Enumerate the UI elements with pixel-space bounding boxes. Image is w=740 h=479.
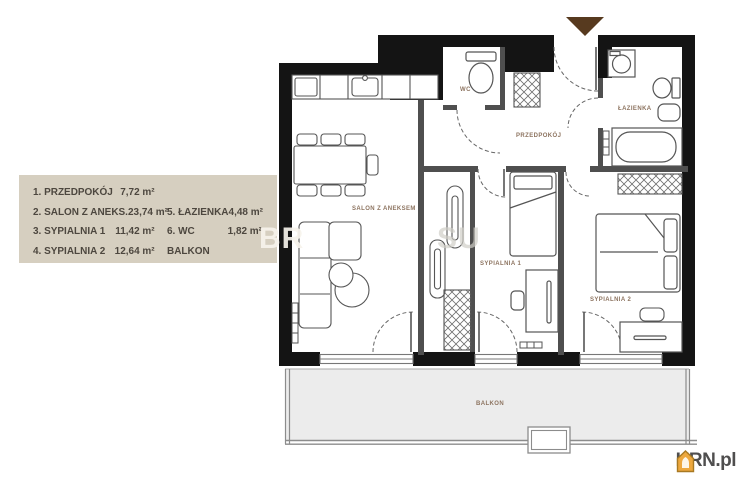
bath-sink: [658, 104, 680, 121]
legend-label: 1. PRZEDPOKÓJ: [33, 183, 113, 203]
legend-row-wc: 6. WC 1,82 m²: [167, 222, 262, 242]
side-table: [329, 263, 353, 287]
stove: [295, 78, 317, 96]
legend-row-balkon: BALKON: [167, 242, 262, 262]
legend-row-sypialnia1: 3. SYPIALNIA 1 11,42 m²: [33, 222, 155, 242]
legend-label: 2. SALON Z ANEKS.: [33, 203, 128, 223]
legend-column-1: 1. PRZEDPOKÓJ 7,72 m² 2. SALON Z ANEKS. …: [33, 183, 161, 261]
floorplan-page: 1. PRZEDPOKÓJ 7,72 m² 2. SALON Z ANEKS. …: [0, 0, 740, 479]
balcony-pillar-detail: [528, 427, 570, 453]
entrance-marker-icon: [566, 17, 604, 36]
legend-label: 5. ŁAZIENKA: [167, 203, 229, 223]
room-label-przedpokoj: PRZEDPOKÓJ: [516, 133, 561, 139]
legend-row-salon: 2. SALON Z ANEKS. 23,74 m²: [33, 203, 155, 223]
krn-logo[interactable]: KRN.pl: [676, 450, 736, 472]
bed-single: [510, 172, 556, 256]
radiator-salon: [292, 303, 298, 343]
legend-row-przedpokoj: 1. PRZEDPOKÓJ 7,72 m²: [33, 183, 155, 203]
bathtub: [612, 128, 682, 166]
bed-double: [596, 214, 680, 292]
hall-closet: [514, 73, 540, 107]
legend-row-sypialnia2: 4. SYPIALNIA 2 12,64 m²: [33, 242, 155, 262]
legend-area: 23,74 m²: [128, 203, 168, 223]
bath-toilet: [653, 78, 680, 98]
watermark-fragment-2: SU: [437, 222, 481, 256]
room-label-wc: WC: [460, 87, 471, 93]
balcony: [285, 369, 697, 453]
radiator-hall: [603, 131, 609, 155]
room-label-balkon: BALKON: [476, 401, 504, 407]
legend-area: 7,72 m²: [120, 183, 154, 203]
faucet-icon: [363, 76, 368, 81]
stool: [640, 308, 664, 321]
dresser: [620, 322, 682, 352]
legend-area: 11,42 m²: [115, 222, 154, 242]
washing-machine: [608, 50, 635, 77]
hall-wardrobe-strip: [430, 186, 471, 350]
windows: [320, 355, 662, 364]
legend-row-lazienka: 5. ŁAZIENKA 4,48 m²: [167, 203, 262, 223]
room-label-sypialnia1: SYPIALNIA 1: [480, 261, 521, 267]
dining-table: [294, 146, 366, 184]
legend-label: 4. SYPIALNIA 2: [33, 242, 105, 262]
legend-label: 6. WC: [167, 222, 195, 242]
legend-label: BALKON: [167, 242, 210, 262]
legend-label: 3. SYPIALNIA 1: [33, 222, 105, 242]
dining-set: [294, 134, 378, 196]
room-label-sypialnia2: SYPIALNIA 2: [590, 297, 631, 303]
house-icon: [676, 450, 695, 473]
legend-area: 4,48 m²: [229, 203, 263, 223]
room-label-salon: SALON Z ANEKSEM: [352, 206, 416, 212]
legend-column-2: 5. ŁAZIENKA 4,48 m² 6. WC 1,82 m² BALKON: [167, 203, 267, 262]
watermark-fragment-1: BR: [259, 222, 304, 256]
wardrobe-bedroom2: [618, 174, 682, 194]
desk: [511, 270, 558, 332]
legend-box: 1. PRZEDPOKÓJ 7,72 m² 2. SALON Z ANEKS. …: [19, 175, 277, 263]
desk-chair: [511, 291, 524, 310]
room-label-lazienka: ŁAZIENKA: [618, 106, 652, 112]
legend-area: 1,82 m²: [228, 222, 262, 242]
radiator-bedroom1: [520, 342, 542, 348]
kitchen-counter: [292, 75, 438, 99]
legend-area: 12,64 m²: [115, 242, 155, 262]
